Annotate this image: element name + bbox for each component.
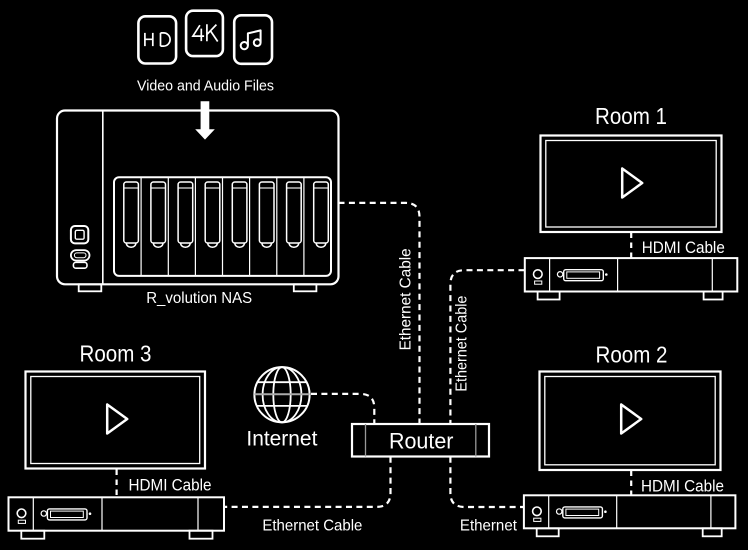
svg-text:Ethernet Cable: Ethernet Cable: [398, 248, 415, 350]
svg-text:Room 3: Room 3: [80, 341, 152, 367]
svg-text:Room 1: Room 1: [595, 103, 667, 129]
svg-text:HDMI Cable: HDMI Cable: [129, 476, 212, 495]
svg-text:HDMI Cable: HDMI Cable: [642, 238, 725, 257]
svg-text:HDMI Cable: HDMI Cable: [641, 477, 724, 496]
svg-text:Internet: Internet: [246, 428, 317, 451]
svg-text:Router: Router: [389, 429, 454, 454]
svg-text:Video and Audio Files: Video and Audio Files: [137, 78, 274, 95]
svg-text:Room 2: Room 2: [596, 342, 668, 368]
svg-text:Ethernet Cable: Ethernet Cable: [454, 296, 471, 392]
svg-text:R_volution NAS: R_volution NAS: [146, 290, 252, 307]
svg-text:Ethernet: Ethernet: [460, 517, 518, 534]
svg-text:Ethernet Cable: Ethernet Cable: [262, 517, 362, 534]
